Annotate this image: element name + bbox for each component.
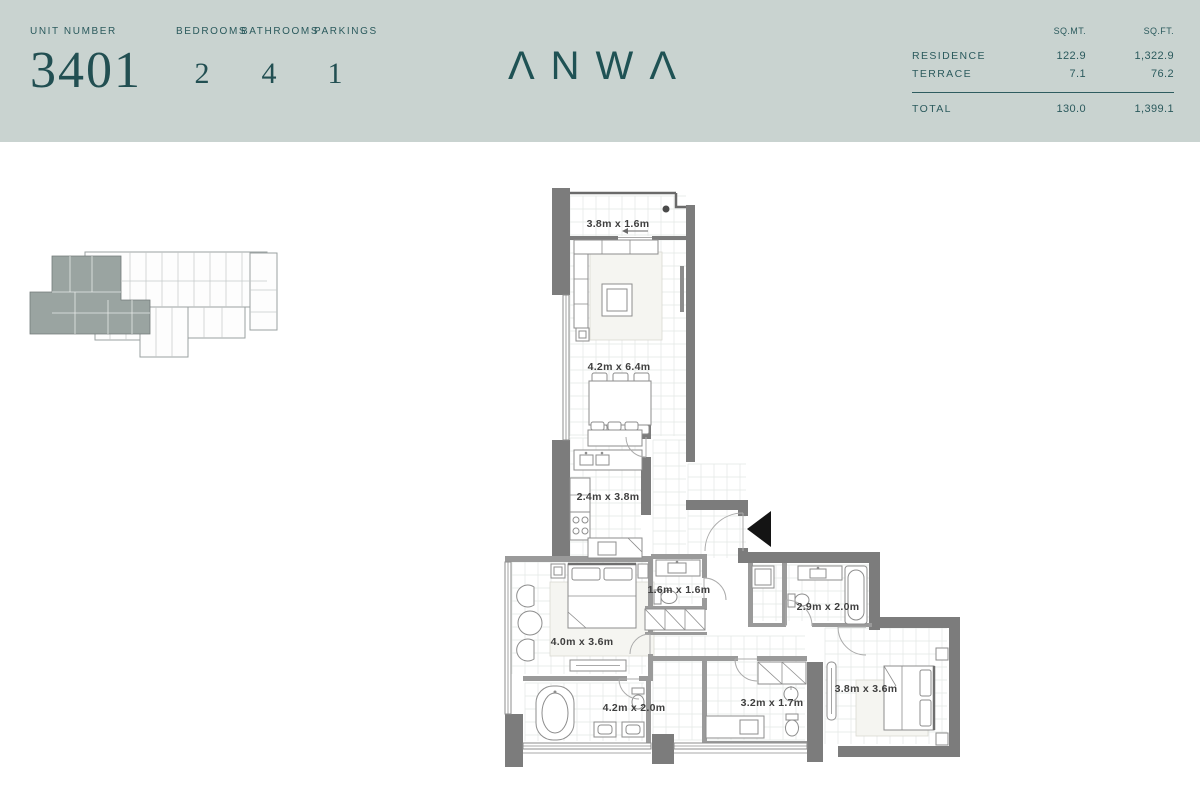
kitchen-base-counter — [588, 538, 642, 558]
bath2-dim: 2.9m x 2.0m — [797, 601, 860, 613]
unit-plan-sheet: { "header": { "unit_number_label": "UNIT… — [0, 0, 1200, 800]
bath3-toilet — [786, 714, 799, 736]
side-table — [576, 328, 589, 341]
column — [663, 206, 670, 213]
round-table — [518, 611, 542, 635]
stove — [570, 512, 590, 540]
bedroom2-dim: 3.8m x 3.6m — [835, 683, 898, 695]
kitchen-island — [588, 422, 642, 446]
shower — [758, 662, 806, 684]
terrace-dim: 3.8m x 1.6m — [587, 218, 650, 230]
nightstand — [638, 564, 648, 578]
bath2-vanity — [798, 566, 842, 580]
hall-wardrobe — [645, 609, 705, 630]
mbath-dim: 4.2m x 2.0m — [603, 702, 666, 714]
washer — [752, 566, 774, 588]
key-plan — [30, 252, 277, 357]
powder-dim: 1.6m x 1.6m — [648, 584, 711, 596]
entrance-arrow-icon — [747, 511, 771, 547]
nightstand — [936, 733, 948, 745]
master-bed — [568, 564, 636, 628]
bath3-vanity — [706, 716, 764, 738]
living-dim: 4.2m x 6.4m — [588, 361, 651, 373]
master-dim: 4.0m x 3.6m — [551, 636, 614, 648]
bath2-tub — [845, 566, 867, 624]
nightstand — [551, 564, 565, 578]
bath3-dim: 3.2m x 1.7m — [741, 697, 804, 709]
nightstand — [936, 648, 948, 660]
pier — [807, 662, 823, 762]
tv-unit — [680, 266, 684, 312]
floor-plan-canvas: 3.8m x 1.6m 4.2m x 6.4m 2.4m x 3.8m 1.6m… — [0, 0, 1200, 800]
kitchen-dim: 2.4m x 3.8m — [577, 491, 640, 503]
dresser — [570, 660, 626, 671]
kitchen-sink-counter — [574, 450, 642, 470]
powder-vanity — [656, 560, 700, 576]
bed2 — [884, 666, 934, 730]
master-tub — [536, 686, 574, 740]
